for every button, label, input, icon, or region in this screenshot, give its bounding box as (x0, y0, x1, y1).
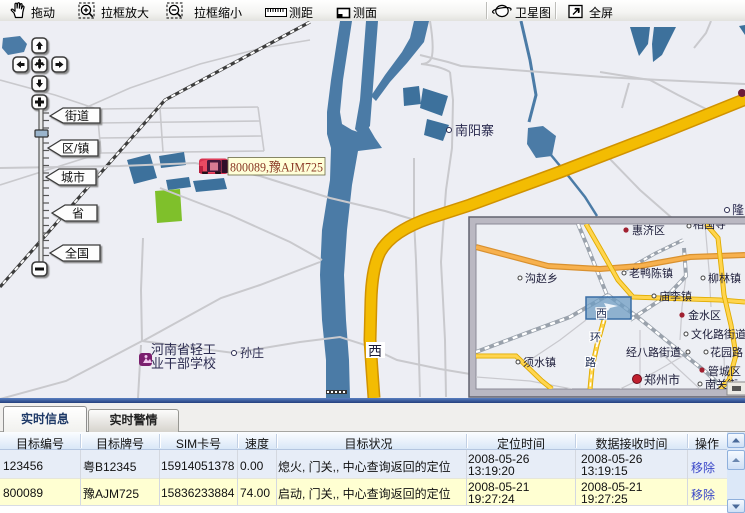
svg-text:路: 路 (585, 356, 596, 369)
svg-text:管城区: 管城区 (708, 364, 741, 378)
svg-text:沟赵乡: 沟赵乡 (525, 271, 558, 285)
svg-text:孙庄: 孙庄 (240, 345, 264, 360)
svg-text:文化路街道: 文化路街道 (691, 327, 745, 341)
svg-text:花园路: 花园路 (710, 346, 743, 359)
svg-text:柳林镇: 柳林镇 (708, 271, 741, 285)
svg-text:南阳寨: 南阳寨 (455, 123, 494, 138)
svg-text:经八路街道: 经八路街道 (626, 345, 681, 359)
svg-text:庙李镇: 庙李镇 (659, 289, 692, 303)
svg-text:省: 省 (72, 207, 84, 221)
svg-text:城市: 城市 (61, 170, 85, 185)
svg-text:河南省轻工: 河南省轻工 (151, 342, 216, 357)
svg-text:业干部学校: 业干部学校 (151, 356, 216, 371)
svg-text:西: 西 (368, 343, 382, 359)
svg-text:惠济区: 惠济区 (632, 223, 665, 237)
svg-text:老鸭陈镇: 老鸭陈镇 (629, 266, 673, 280)
svg-text:全国: 全国 (65, 246, 89, 261)
svg-text:隆: 隆 (732, 202, 744, 217)
svg-text:区/镇: 区/镇 (62, 142, 89, 156)
svg-text:西: 西 (596, 308, 607, 320)
svg-text:800089,豫AJM725: 800089,豫AJM725 (230, 160, 323, 175)
svg-text:郑州市: 郑州市 (644, 372, 680, 387)
svg-text:街道: 街道 (65, 109, 89, 123)
svg-text:金水区: 金水区 (688, 308, 721, 322)
svg-text:须水镇: 须水镇 (523, 355, 556, 369)
svg-text:环: 环 (590, 332, 601, 344)
